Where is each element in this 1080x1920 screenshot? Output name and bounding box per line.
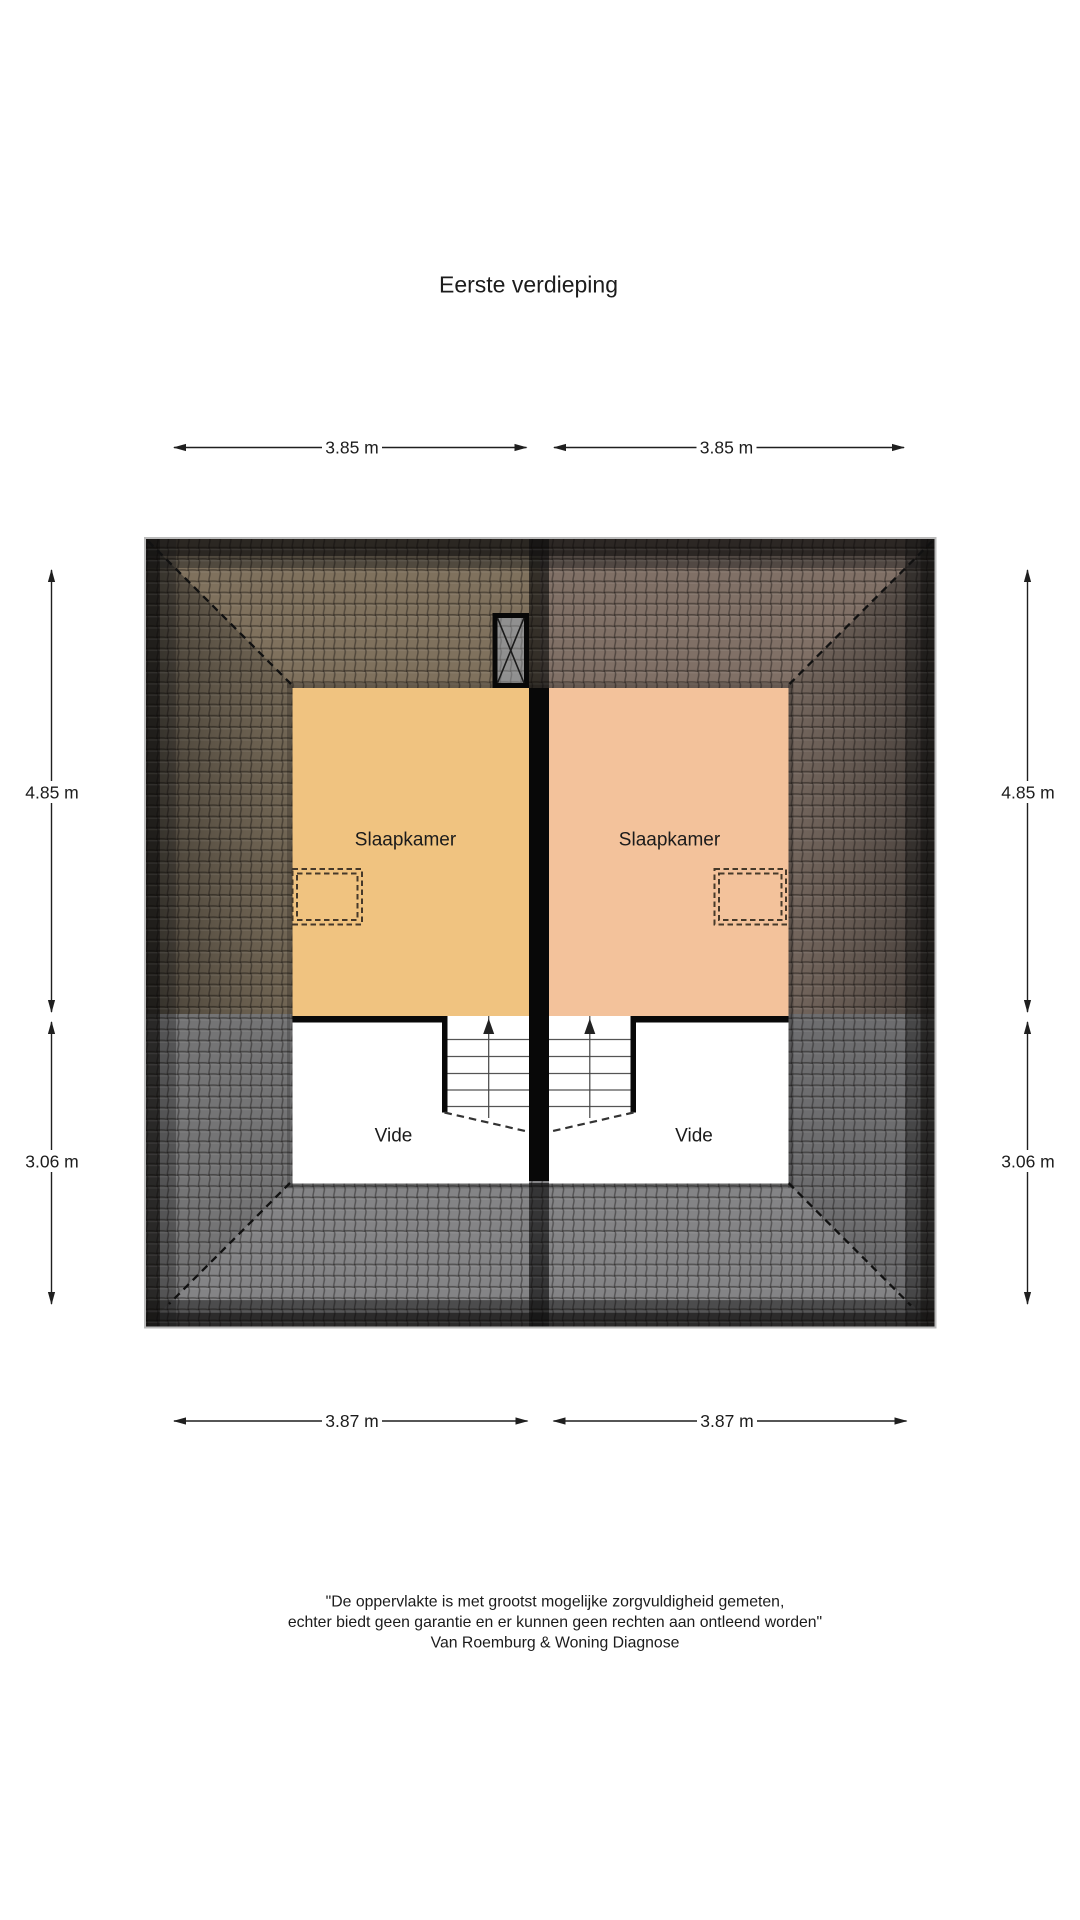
- svg-text:3.87 m: 3.87 m: [700, 1411, 754, 1431]
- svg-text:"De oppervlakte is met grootst: "De oppervlakte is met grootst mogelijke…: [326, 1594, 785, 1611]
- svg-text:Eerste verdieping: Eerste verdieping: [439, 272, 618, 298]
- svg-text:Slaapkamer: Slaapkamer: [619, 830, 721, 851]
- svg-text:Vide: Vide: [375, 1126, 413, 1147]
- svg-text:Slaapkamer: Slaapkamer: [355, 830, 457, 851]
- svg-text:3.06 m: 3.06 m: [25, 1152, 79, 1172]
- svg-text:3.87 m: 3.87 m: [325, 1411, 379, 1431]
- svg-text:3.85 m: 3.85 m: [325, 438, 379, 458]
- svg-text:Van Roemburg & Woning Diagnose: Van Roemburg & Woning Diagnose: [431, 1635, 680, 1652]
- svg-text:Vide: Vide: [675, 1126, 713, 1147]
- svg-text:4.85 m: 4.85 m: [1001, 783, 1055, 803]
- svg-text:3.06 m: 3.06 m: [1001, 1152, 1055, 1172]
- svg-text:echter biedt geen garantie en: echter biedt geen garantie en er kunnen …: [288, 1614, 822, 1631]
- svg-text:3.85 m: 3.85 m: [700, 438, 754, 458]
- svg-text:4.85 m: 4.85 m: [25, 783, 79, 803]
